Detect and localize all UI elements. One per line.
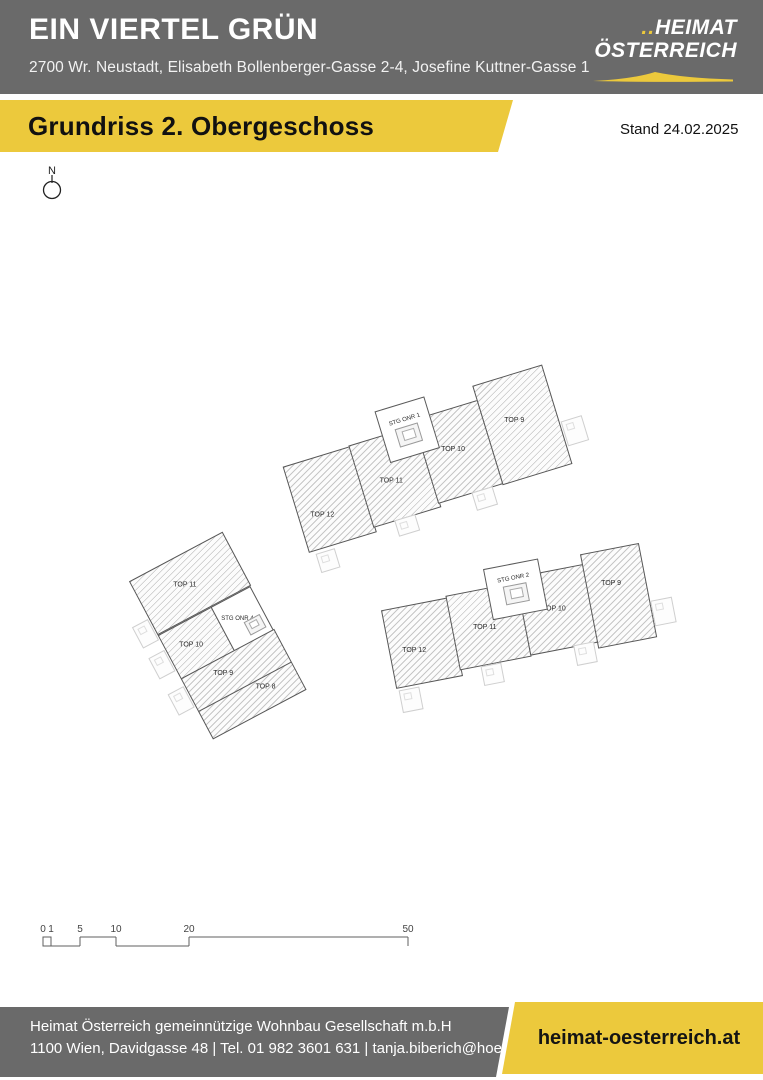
unit-label: TOP 11 <box>173 581 196 588</box>
unit-label: TOP 11 <box>473 624 496 631</box>
building-bottom: TOP 12 TOP 11 TOP 10 TOP 9 STG ONR 2 <box>380 552 661 684</box>
footer-contact: 1100 Wien, Davidgasse 48 | Tel. 01 982 3… <box>30 1040 519 1057</box>
unit-label: TOP 9 <box>213 670 233 677</box>
footer-company: Heimat Österreich gemeinnützige Wohnbau … <box>30 1018 452 1035</box>
unit-label: TOP 10 <box>179 641 203 648</box>
scale-bar: 0 1 5 10 20 50 <box>38 920 423 954</box>
stairwell: STG ONR 2 <box>483 558 548 620</box>
balcony-outline <box>560 415 589 446</box>
balcony-outline <box>168 686 195 716</box>
scale-label: 5 <box>77 924 83 935</box>
balcony-outline <box>650 597 677 627</box>
stair-core <box>503 582 530 605</box>
footer-website: heimat-oesterreich.at <box>502 1002 763 1074</box>
scale-label: 50 <box>402 924 414 935</box>
project-address: 2700 Wr. Neustadt, Elisabeth Bollenberge… <box>29 59 590 77</box>
unit-label: TOP 12 <box>310 511 334 518</box>
balcony-outline <box>472 486 499 511</box>
balcony-outline <box>399 686 424 713</box>
north-arrow-icon: N <box>37 163 67 201</box>
title-banner: Grundriss 2. Obergeschoss <box>0 100 513 152</box>
unit-label: TOP 12 <box>402 646 426 653</box>
balcony-outline <box>394 514 420 537</box>
balcony-outline <box>480 662 504 686</box>
building-top: TOP 12 TOP 11 TOP 10 TOP 9 STG ONR 1 <box>280 375 577 545</box>
balcony-outline <box>148 650 175 680</box>
logo-line1: ..HEIMAT <box>577 16 737 39</box>
unit-label: TOP 11 <box>379 478 402 485</box>
project-title: EIN VIERTEL GRÜN <box>29 13 318 47</box>
scale-label: 10 <box>110 924 122 935</box>
logo-line2: ÖSTERREICH <box>577 39 737 62</box>
balcony-outline <box>132 619 159 649</box>
unit-label: TOP 9 <box>505 417 525 424</box>
footer-website-banner: heimat-oesterreich.at <box>502 1002 763 1074</box>
stair-core <box>395 422 424 447</box>
sheet-title: Grundriss 2. Obergeschoss <box>28 100 374 152</box>
plan-document-page: EIN VIERTEL GRÜN 2700 Wr. Neustadt, Elis… <box>0 0 763 1080</box>
scale-label: 0 <box>40 924 46 935</box>
building-left: TOP 11 TOP 10 STG ONR 4 TOP 9 TOP 8 <box>129 532 307 741</box>
heimat-oesterreich-logo: ..HEIMAT ÖSTERREICH <box>577 16 737 62</box>
logo-dots: .. <box>641 16 655 39</box>
unit-label: TOP 8 <box>256 684 276 691</box>
unit-label: TOP 10 <box>441 446 465 453</box>
logo-swoosh-icon <box>593 72 733 83</box>
scale-label: 1 <box>48 924 54 935</box>
balcony-outline <box>316 548 341 573</box>
balcony-outline <box>573 641 598 666</box>
scale-label: 20 <box>183 924 195 935</box>
unit-label: TOP 9 <box>601 580 621 587</box>
stand-date: Stand 24.02.2025 <box>620 121 738 138</box>
header-bar: EIN VIERTEL GRÜN 2700 Wr. Neustadt, Elis… <box>0 0 763 94</box>
